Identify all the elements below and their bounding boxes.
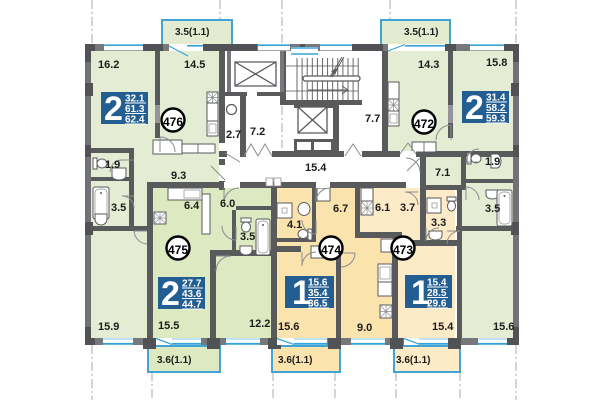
- svg-text:14.3: 14.3: [418, 59, 439, 71]
- svg-text:7.1: 7.1: [435, 167, 450, 179]
- svg-text:6.0: 6.0: [220, 198, 235, 210]
- svg-text:15.4: 15.4: [305, 162, 327, 174]
- svg-text:9.3: 9.3: [171, 170, 186, 182]
- svg-text:3.5(1.1): 3.5(1.1): [404, 27, 438, 38]
- svg-text:476: 476: [163, 115, 183, 129]
- svg-text:15.4: 15.4: [432, 321, 454, 333]
- svg-text:14.5: 14.5: [184, 59, 205, 71]
- svg-text:15.5: 15.5: [158, 320, 179, 332]
- svg-text:15.6: 15.6: [493, 321, 514, 333]
- svg-text:3.5(1.1): 3.5(1.1): [175, 27, 209, 38]
- svg-text:2.7: 2.7: [226, 129, 241, 141]
- svg-text:12.2: 12.2: [249, 318, 270, 330]
- svg-text:2: 2: [161, 275, 180, 313]
- svg-text:16.2: 16.2: [98, 59, 119, 71]
- svg-text:6.1: 6.1: [375, 202, 390, 214]
- svg-text:1.9: 1.9: [105, 159, 120, 171]
- svg-text:3.5: 3.5: [240, 231, 255, 243]
- svg-text:7.7: 7.7: [365, 113, 380, 125]
- svg-text:475: 475: [168, 243, 188, 257]
- svg-text:473: 473: [393, 243, 413, 257]
- svg-text:474: 474: [321, 243, 341, 257]
- svg-text:6.7: 6.7: [333, 203, 348, 215]
- svg-text:3.6(1.1): 3.6(1.1): [396, 355, 430, 366]
- svg-text:2: 2: [104, 90, 123, 128]
- svg-text:4.1: 4.1: [287, 219, 302, 231]
- svg-text:3.3: 3.3: [431, 217, 446, 229]
- svg-text:15.8: 15.8: [486, 57, 507, 69]
- svg-text:6.4: 6.4: [184, 200, 200, 212]
- svg-text:3.6(1.1): 3.6(1.1): [157, 355, 191, 366]
- svg-text:3.5: 3.5: [485, 203, 500, 215]
- svg-text:3.7: 3.7: [400, 202, 415, 214]
- svg-text:9.0: 9.0: [357, 322, 372, 334]
- svg-text:2: 2: [465, 89, 484, 127]
- svg-text:15.6: 15.6: [278, 321, 299, 333]
- svg-text:1.9: 1.9: [485, 156, 500, 168]
- svg-text:3.6(1.1): 3.6(1.1): [278, 355, 312, 366]
- svg-text:15.9: 15.9: [98, 321, 119, 333]
- svg-text:472: 472: [414, 117, 434, 131]
- svg-text:7.2: 7.2: [250, 126, 265, 138]
- svg-text:3.5: 3.5: [111, 202, 126, 214]
